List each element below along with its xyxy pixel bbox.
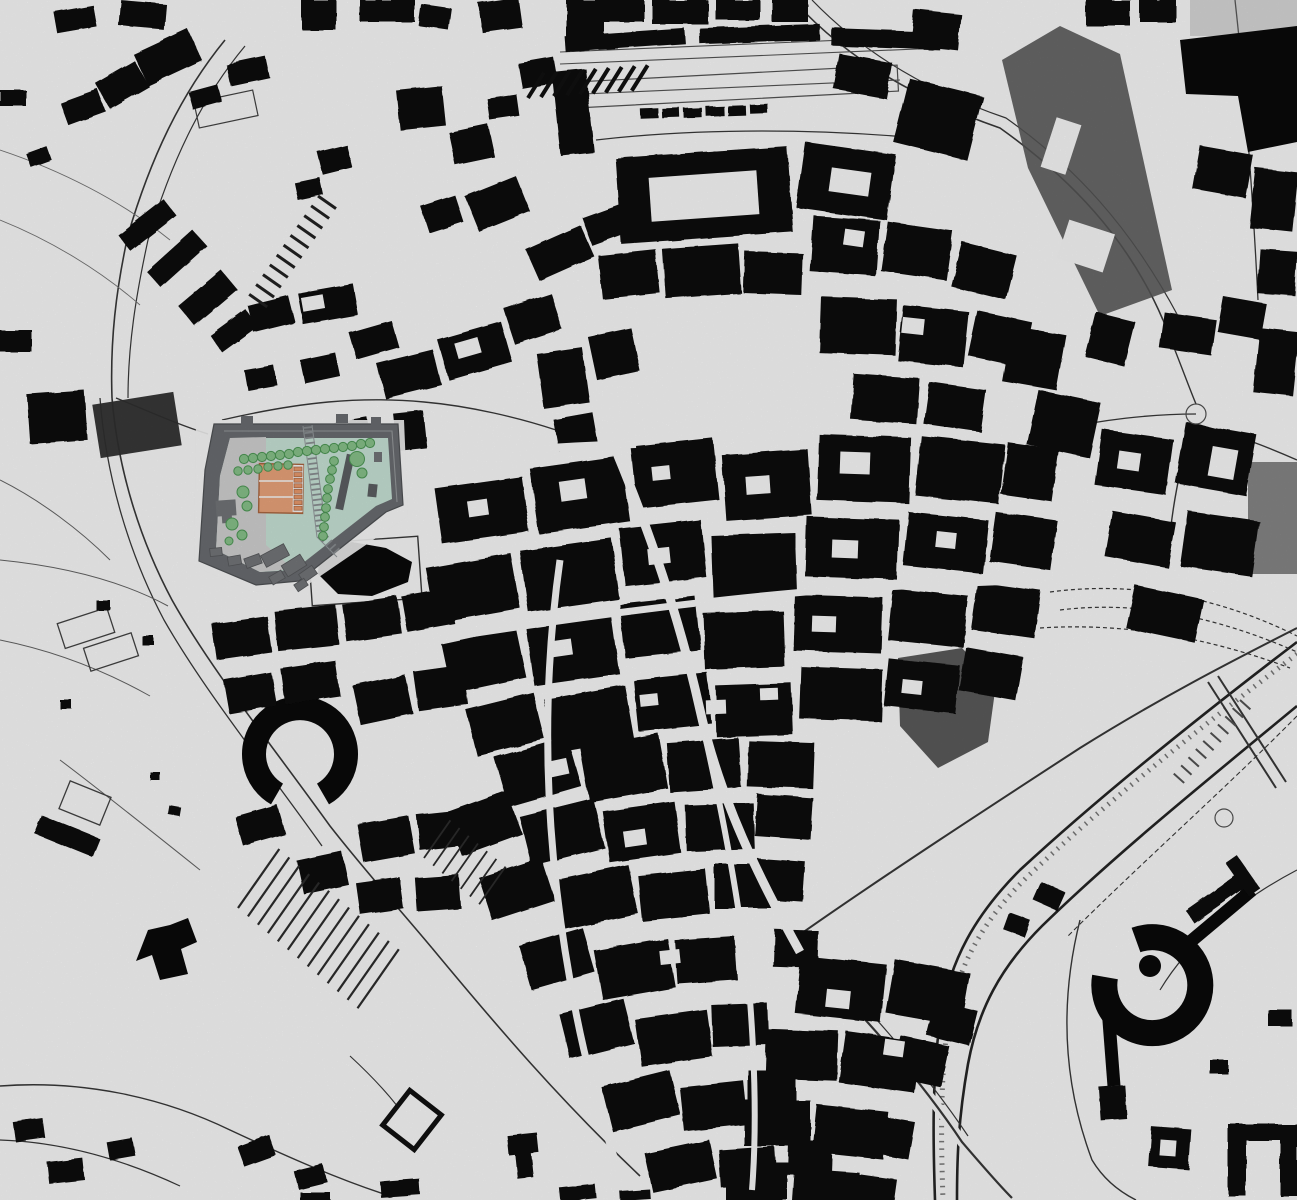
map-viewport (0, 0, 1297, 1200)
scan-grain-texture (0, 0, 1297, 1200)
city-figure-ground-map (0, 0, 1297, 1200)
